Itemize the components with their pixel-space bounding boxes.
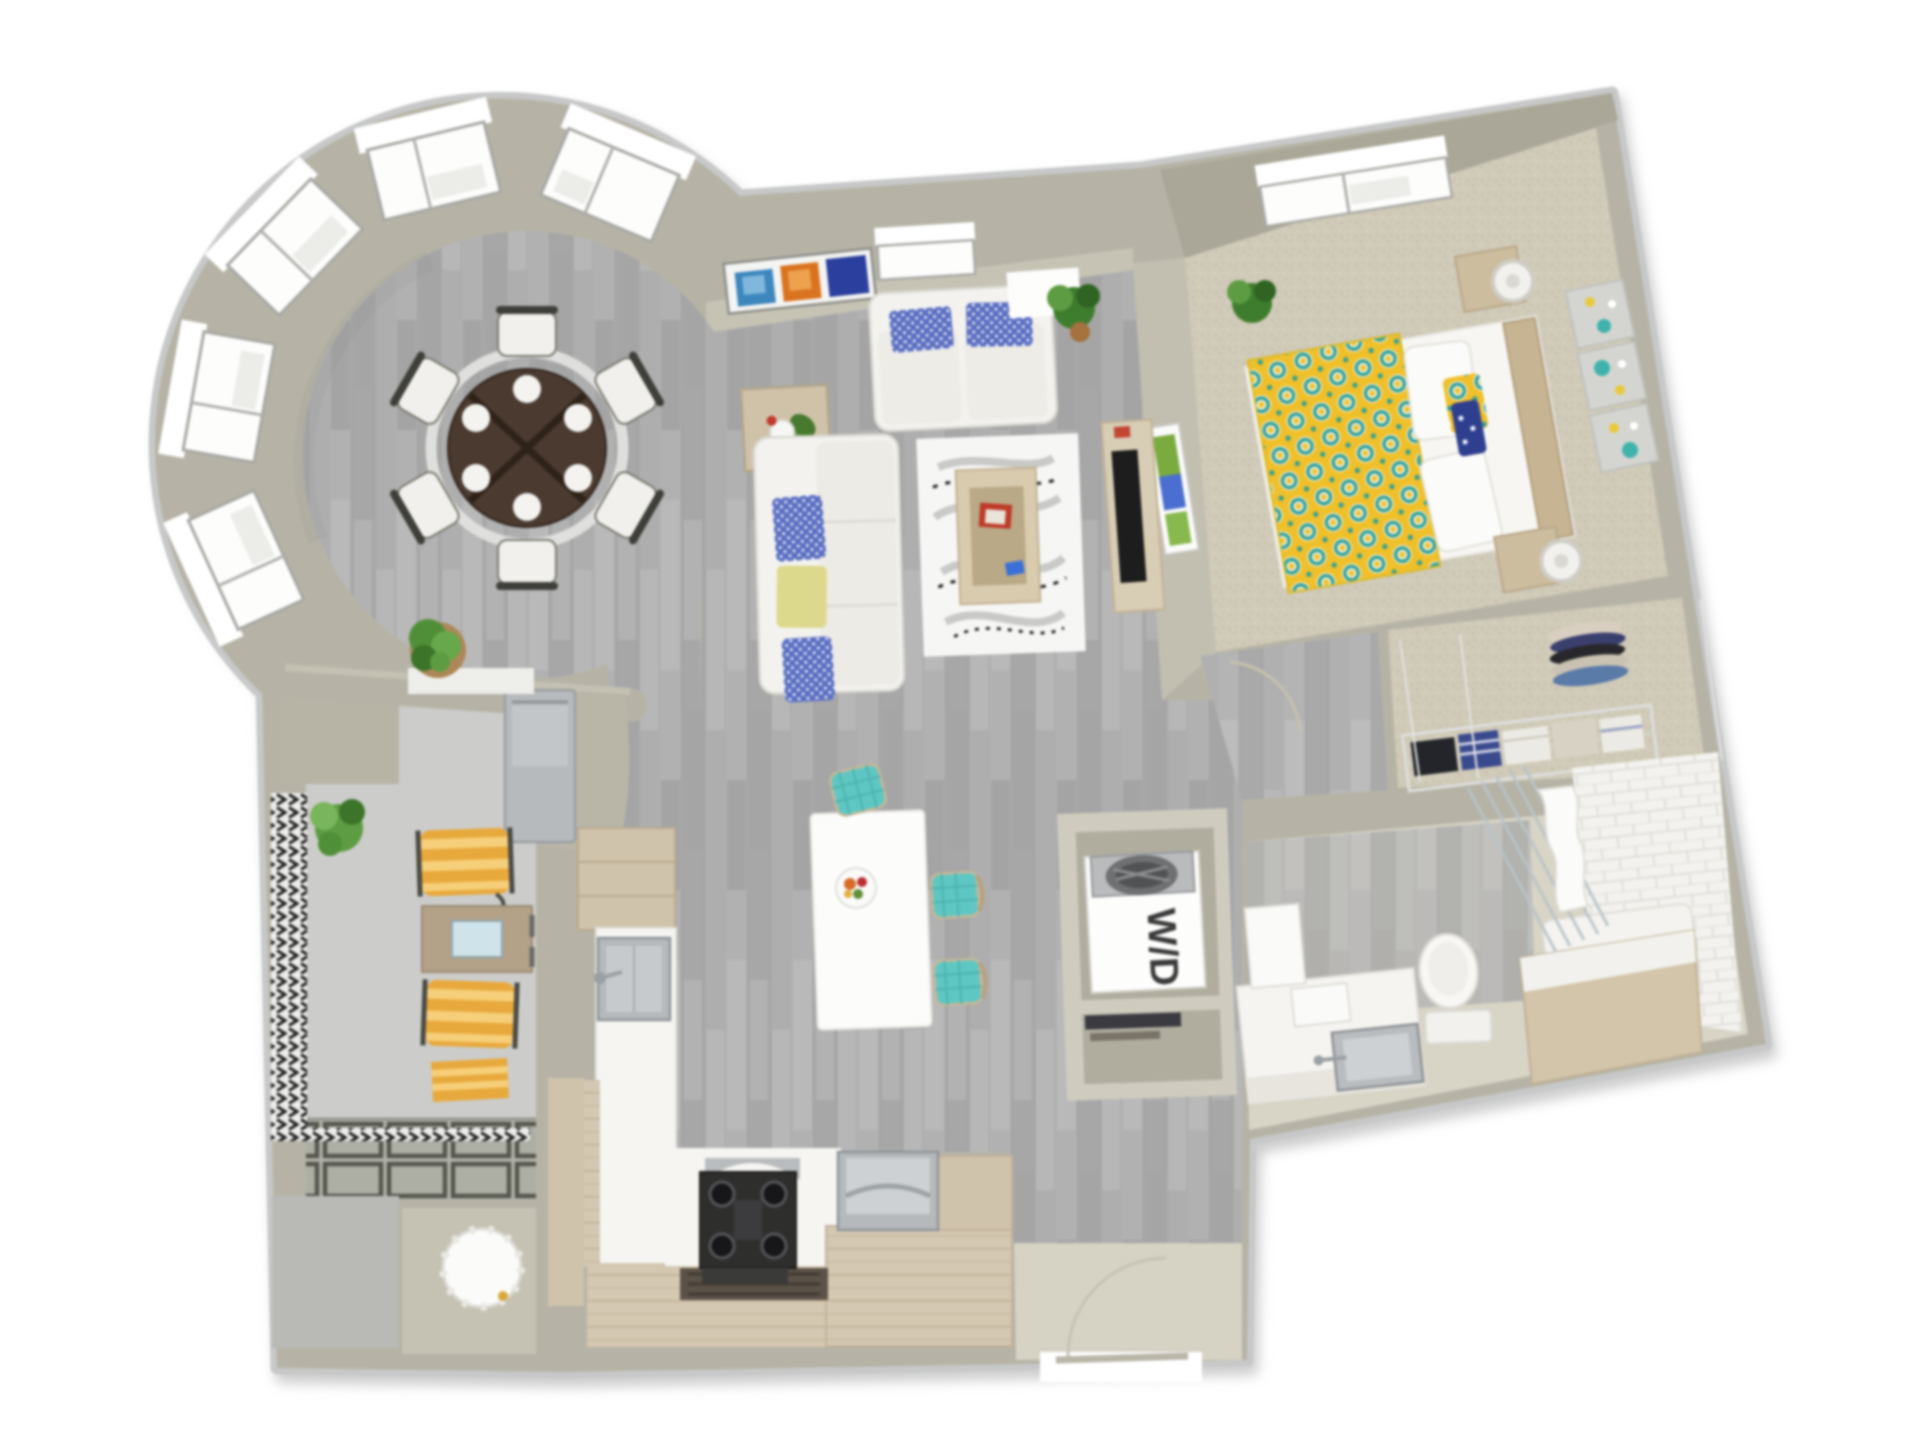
svg-text:W/D: W/D <box>1138 907 1186 987</box>
